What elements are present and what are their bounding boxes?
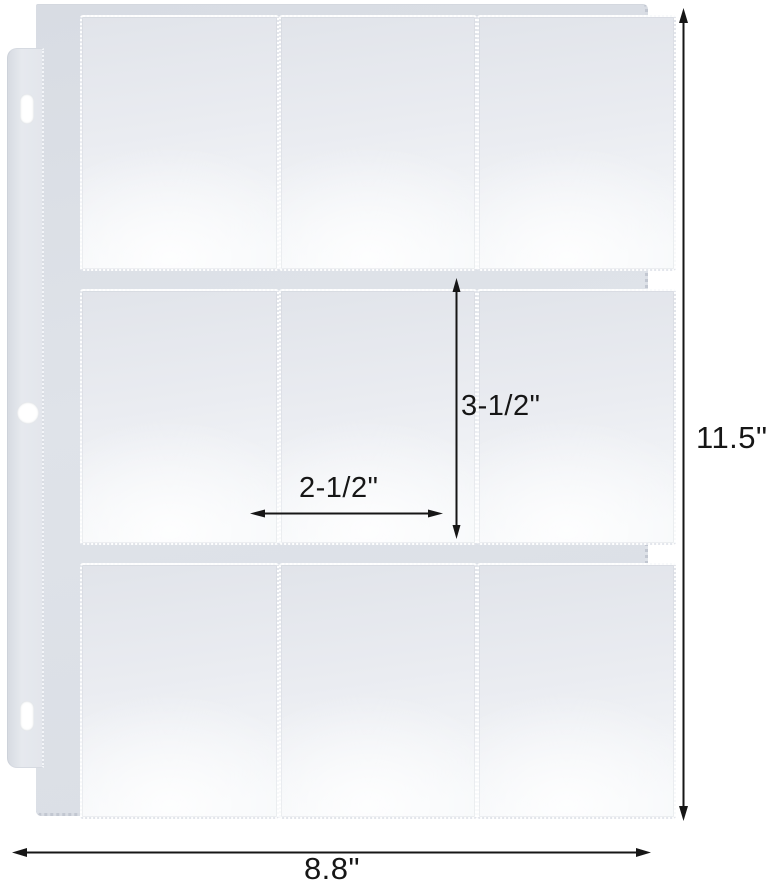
pocket-r3c3 bbox=[477, 563, 676, 819]
product-dimension-diagram: 2-1/2" 3-1/2" 11.5" 8.8" bbox=[0, 0, 767, 888]
page-height-arrow bbox=[679, 8, 688, 821]
pocket-r2c1 bbox=[80, 289, 279, 545]
pocket-width-label: 2-1/2" bbox=[299, 474, 378, 503]
binder-hole-middle bbox=[17, 402, 39, 424]
pocket-grid bbox=[80, 15, 676, 819]
binder-hole-bottom bbox=[20, 701, 34, 731]
binder-strip bbox=[7, 48, 44, 768]
pocket-r1c3 bbox=[477, 15, 676, 271]
pocket-r2c2 bbox=[279, 289, 478, 545]
pocket-r1c1 bbox=[80, 15, 279, 271]
pocket-r3c2 bbox=[279, 563, 478, 819]
pocket-r3c1 bbox=[80, 563, 279, 819]
binder-hole-top bbox=[20, 94, 34, 124]
pocket-height-label: 3-1/2" bbox=[461, 392, 540, 421]
page-width-label: 8.8" bbox=[300, 853, 364, 884]
nine-pocket-page bbox=[36, 4, 648, 816]
pocket-r1c2 bbox=[279, 15, 478, 271]
page-height-label: 11.5" bbox=[696, 422, 767, 453]
